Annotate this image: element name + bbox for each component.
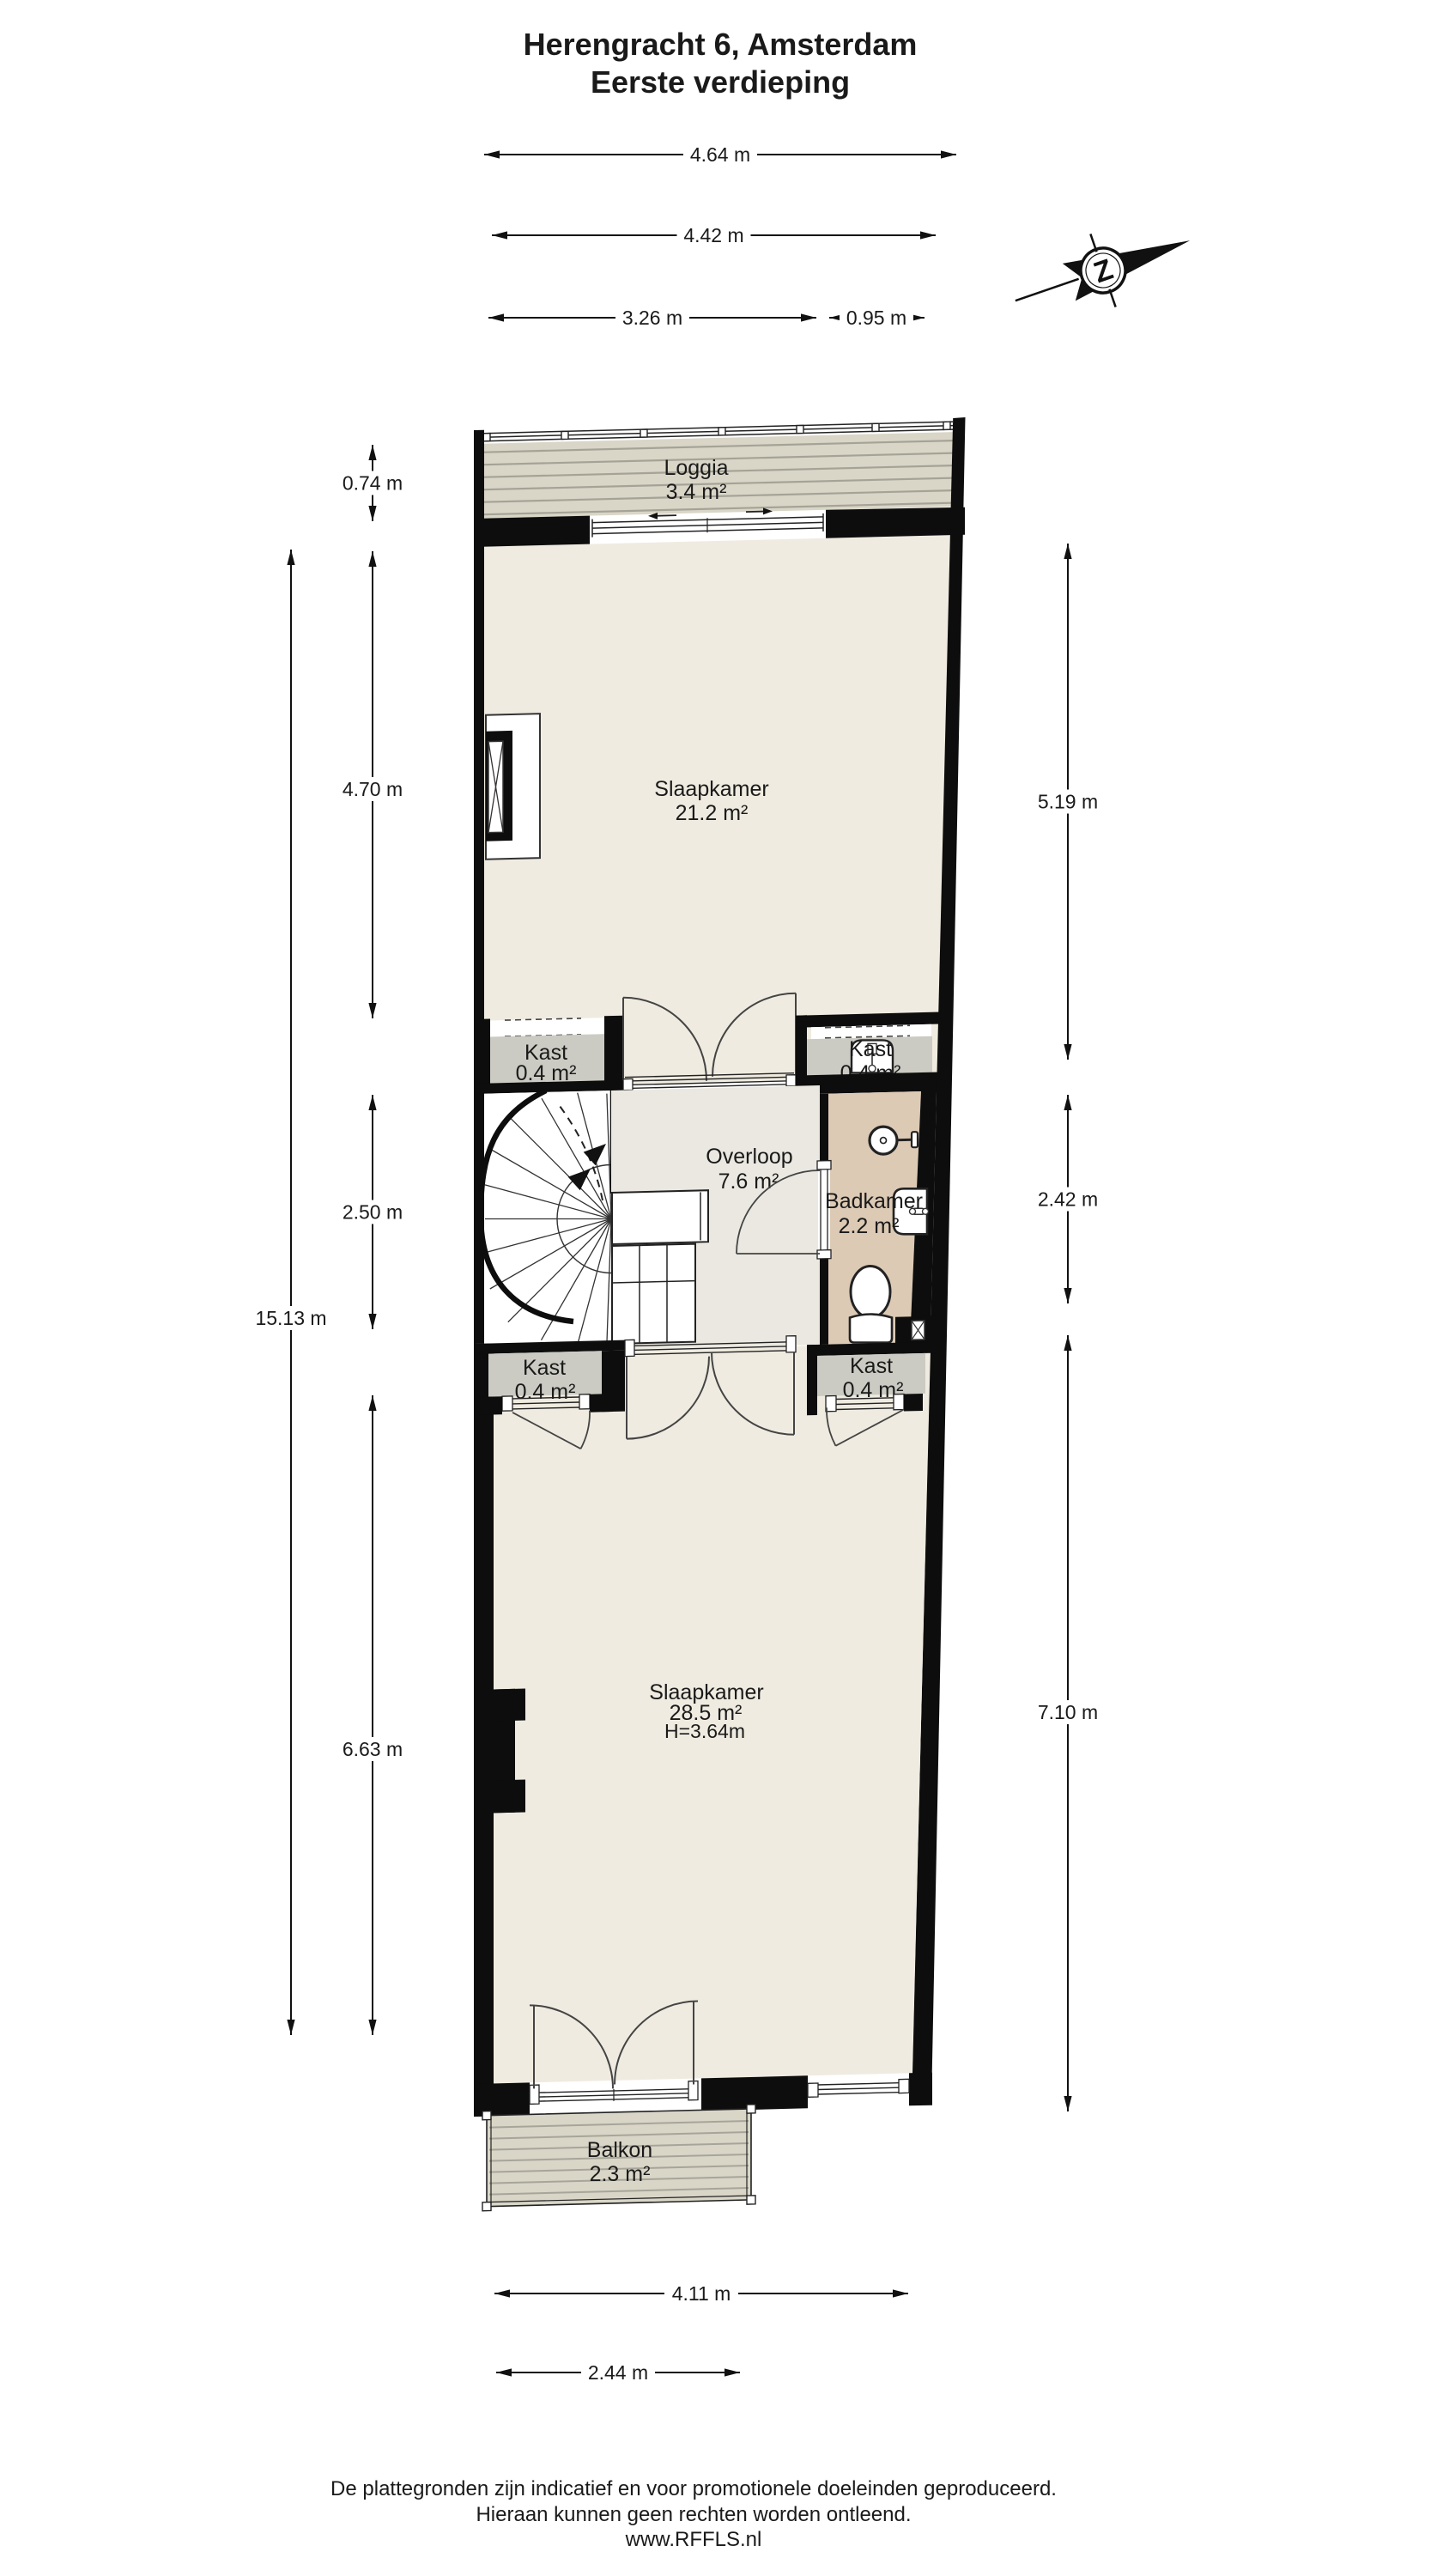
- svg-text:2.2 m²: 2.2 m²: [839, 1214, 900, 1238]
- svg-text:H=3.64m: H=3.64m: [664, 1720, 745, 1742]
- svg-text:Kast: Kast: [523, 1356, 566, 1380]
- svg-text:Slaapkamer: Slaapkamer: [654, 777, 768, 801]
- svg-text:2.50 m: 2.50 m: [343, 1201, 403, 1224]
- svg-text:2.3 m²: 2.3 m²: [590, 2162, 651, 2186]
- svg-text:4.42 m: 4.42 m: [683, 224, 743, 246]
- svg-text:5.19 m: 5.19 m: [1038, 791, 1098, 813]
- svg-text:4.11 m: 4.11 m: [672, 2282, 731, 2305]
- svg-text:7.10 m: 7.10 m: [1038, 1701, 1098, 1723]
- svg-text:15.13 m: 15.13 m: [255, 1307, 326, 1329]
- svg-text:7.6 m²: 7.6 m²: [718, 1170, 779, 1194]
- svg-text:Hieraan kunnen geen rechten wo: Hieraan kunnen geen rechten worden ontle…: [476, 2503, 911, 2526]
- svg-text:0.4 m²: 0.4 m²: [515, 1380, 576, 1404]
- svg-text:4.64 m: 4.64 m: [690, 143, 750, 166]
- svg-text:Kast: Kast: [849, 1037, 892, 1061]
- svg-text:Eerste verdieping: Eerste verdieping: [591, 64, 850, 100]
- svg-text:21.2 m²: 21.2 m²: [676, 801, 749, 825]
- svg-text:2.42 m: 2.42 m: [1038, 1188, 1098, 1211]
- svg-text:www.RFFLS.nl: www.RFFLS.nl: [625, 2528, 762, 2551]
- svg-text:0.95 m: 0.95 m: [846, 307, 906, 329]
- svg-text:2.44 m: 2.44 m: [588, 2361, 648, 2384]
- svg-text:Kast: Kast: [850, 1354, 893, 1378]
- svg-text:6.63 m: 6.63 m: [343, 1738, 403, 1760]
- svg-text:Loggia: Loggia: [664, 456, 728, 480]
- svg-text:3.26 m: 3.26 m: [622, 307, 682, 329]
- svg-text:Overloop: Overloop: [706, 1145, 792, 1169]
- svg-text:De plattegronden zijn indicati: De plattegronden zijn indicatief en voor…: [330, 2477, 1057, 2500]
- svg-text:Herengracht 6, Amsterdam: Herengracht 6, Amsterdam: [524, 27, 918, 62]
- svg-text:Balkon: Balkon: [587, 2138, 652, 2162]
- svg-text:3.4 m²: 3.4 m²: [666, 480, 727, 504]
- svg-text:Badkamer: Badkamer: [825, 1189, 923, 1213]
- svg-text:0.74 m: 0.74 m: [343, 472, 403, 495]
- svg-text:4.70 m: 4.70 m: [343, 778, 403, 800]
